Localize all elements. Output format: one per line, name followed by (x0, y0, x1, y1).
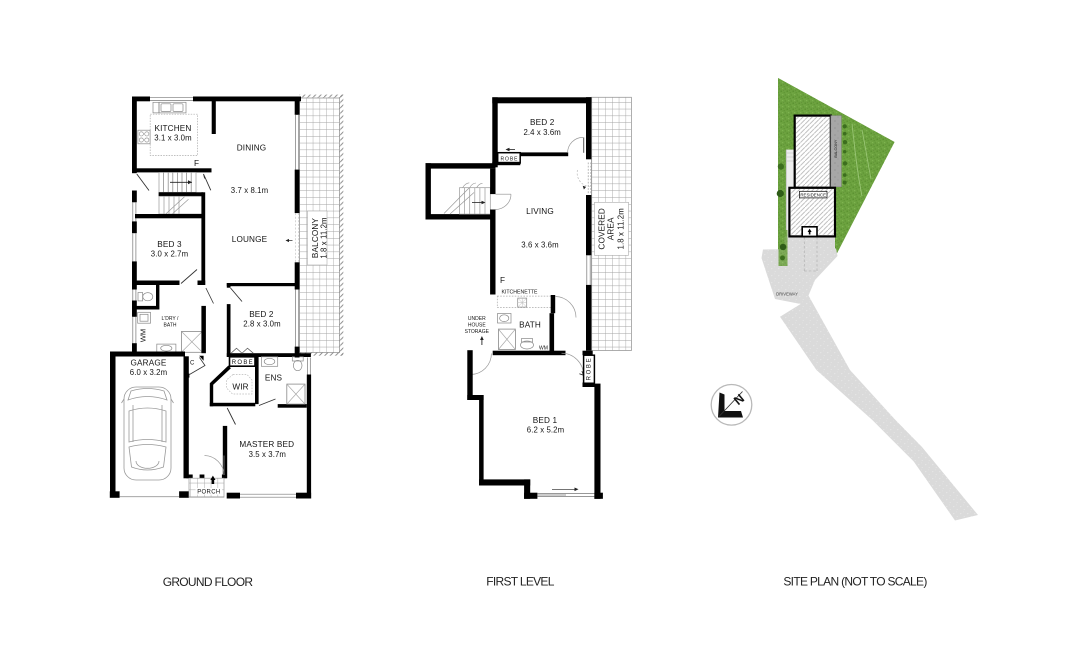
svg-text:BATH: BATH (519, 321, 541, 330)
svg-text:1.8 x 11.2m: 1.8 x 11.2m (617, 208, 626, 249)
svg-text:2.4 x 3.6m: 2.4 x 3.6m (523, 128, 560, 137)
svg-text:RESIDENCE: RESIDENCE (800, 192, 826, 197)
svg-text:C: C (190, 361, 195, 367)
svg-text:KITCHEN: KITCHEN (155, 124, 192, 133)
svg-text:DRIVEWAY: DRIVEWAY (776, 292, 798, 297)
svg-text:LIVING: LIVING (526, 207, 554, 216)
svg-text:6.2 x 5.2m: 6.2 x 5.2m (527, 426, 564, 435)
svg-text:ENS: ENS (265, 374, 283, 383)
svg-text:WM: WM (138, 329, 147, 342)
svg-text:1.8 x 11.2m: 1.8 x 11.2m (320, 217, 329, 258)
svg-text:HOUSE: HOUSE (468, 323, 486, 329)
svg-text:STORAGE: STORAGE (465, 329, 490, 335)
svg-text:2.8 x 3.0m: 2.8 x 3.0m (243, 320, 280, 329)
svg-text:WM: WM (539, 346, 548, 352)
svg-text:SITE PLAN (NOT TO SCALE): SITE PLAN (NOT TO SCALE) (783, 575, 927, 589)
svg-text:F: F (194, 159, 199, 168)
svg-text:L'DRY /: L'DRY / (162, 316, 180, 322)
svg-text:3.7 x 8.1m: 3.7 x 8.1m (231, 186, 268, 195)
svg-text:BED 2: BED 2 (249, 310, 274, 319)
svg-text:BED 3: BED 3 (157, 240, 182, 249)
svg-text:6.0 x 3.2m: 6.0 x 3.2m (130, 368, 167, 377)
svg-text:BED 2: BED 2 (530, 118, 555, 127)
svg-text:WIR: WIR (232, 383, 248, 392)
svg-text:GARAGE: GARAGE (131, 359, 167, 368)
svg-text:3.5 x 3.7m: 3.5 x 3.7m (249, 450, 286, 459)
svg-text:GROUND FLOOR: GROUND FLOOR (163, 575, 254, 589)
svg-text:MASTER BED: MASTER BED (239, 440, 294, 449)
svg-text:LOUNGE: LOUNGE (232, 235, 268, 244)
svg-text:ROBE: ROBE (501, 157, 519, 163)
svg-text:KITCHENETTE: KITCHENETTE (501, 290, 538, 296)
svg-text:BATH: BATH (164, 323, 177, 329)
svg-text:BED 1: BED 1 (533, 416, 558, 425)
svg-text:FIRST LEVEL: FIRST LEVEL (486, 575, 554, 589)
svg-text:3.0 x 2.7m: 3.0 x 2.7m (151, 250, 188, 259)
svg-text:DINING: DINING (237, 144, 267, 153)
svg-text:COVERED: COVERED (598, 208, 607, 250)
svg-text:UNDER: UNDER (468, 316, 486, 322)
svg-text:F: F (500, 276, 505, 285)
svg-text:PORCH: PORCH (197, 489, 220, 495)
svg-text:BALCONY: BALCONY (834, 139, 838, 158)
svg-text:3.6 x 3.6m: 3.6 x 3.6m (521, 241, 558, 250)
svg-text:3.1 x 3.0m: 3.1 x 3.0m (154, 134, 191, 143)
svg-text:AREA: AREA (607, 217, 616, 240)
